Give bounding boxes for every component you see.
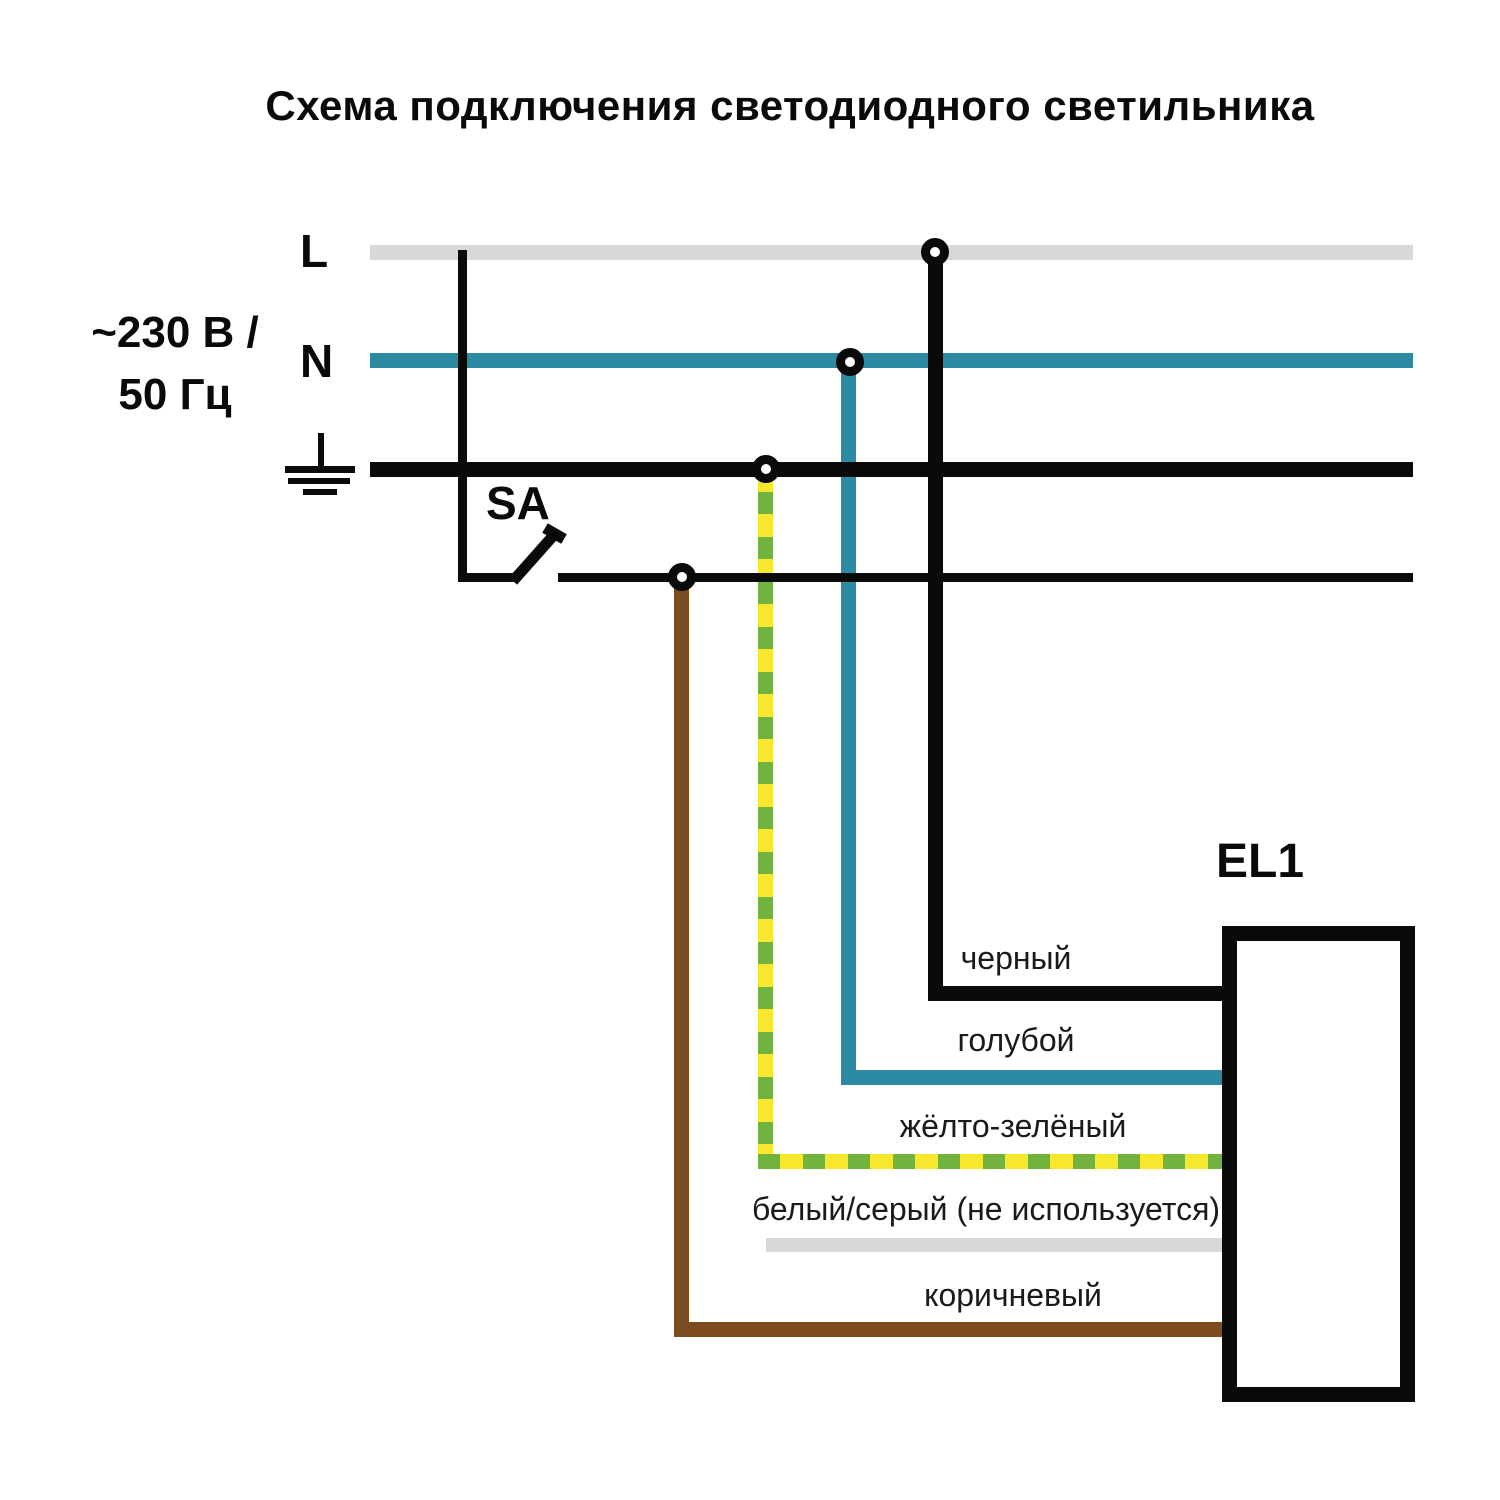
wire-black-vertical: [928, 252, 943, 1001]
luminaire-box: [1222, 926, 1415, 1402]
wire-brown-horizontal: [674, 1322, 1222, 1337]
ground-bar-1: [285, 466, 355, 473]
wire-white-gray: [766, 1238, 1222, 1252]
switch-label: SA: [486, 480, 550, 526]
junction-dot-pe: [752, 455, 780, 483]
line-l-label: L: [300, 228, 328, 274]
switch-feed-line: [458, 250, 467, 582]
junction-dot-n: [836, 348, 864, 376]
wiring-diagram: Схема подключения светодиодного светильн…: [0, 0, 1500, 1500]
ground-stem: [318, 433, 324, 469]
wire-label-yellow-green: жёлто-зелёный: [900, 1109, 1127, 1144]
luminaire-label: EL1: [1216, 838, 1304, 886]
ground-bar-3: [303, 489, 337, 495]
voltage-line2: 50 Гц: [70, 364, 280, 426]
voltage-label: ~230 В / 50 Гц: [70, 302, 280, 426]
diagram-title: Схема подключения светодиодного светильн…: [80, 82, 1500, 130]
line-n-label: N: [300, 338, 333, 384]
wire-brown-vertical: [674, 577, 689, 1337]
junction-dot-l: [921, 238, 949, 266]
wire-black-horizontal: [928, 986, 1222, 1001]
junction-dot-switched: [668, 563, 696, 591]
voltage-line1: ~230 В /: [70, 302, 280, 364]
wire-blue-horizontal: [841, 1070, 1222, 1085]
bus-line-pe: [370, 462, 1413, 477]
wire-label-blue: голубой: [957, 1023, 1074, 1058]
wire-label-brown: коричневый: [924, 1278, 1102, 1313]
ground-bar-2: [288, 478, 350, 484]
bus-line-n: [370, 353, 1413, 368]
wire-label-black: черный: [961, 941, 1072, 976]
bus-line-l: [370, 245, 1413, 260]
wire-yellow-green-horizontal: [758, 1154, 1222, 1169]
wire-label-white-gray: белый/серый (не используется): [752, 1192, 1220, 1227]
